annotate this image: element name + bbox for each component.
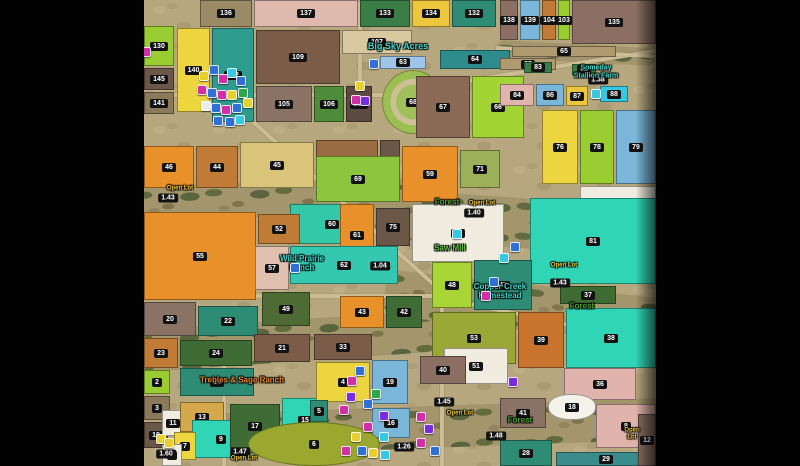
field-number-badge: 42 — [397, 308, 411, 317]
field-number-badge: 18 — [565, 403, 579, 412]
map-marker-icon[interactable] — [380, 450, 390, 460]
field-number-badge: 6 — [309, 440, 319, 449]
place-label: Wild Prairie Ranch — [280, 255, 324, 273]
map-marker-icon[interactable] — [424, 424, 434, 434]
field-number-badge: 3 — [152, 404, 162, 413]
map-marker-icon[interactable] — [369, 59, 379, 69]
field-number-badge: 69 — [351, 175, 365, 184]
field-number-badge: 28 — [519, 449, 533, 458]
field-number-badge: 145 — [150, 75, 168, 84]
map-marker-icon[interactable] — [379, 411, 389, 421]
place-label: Forest — [508, 417, 532, 426]
map-marker-icon[interactable] — [591, 89, 601, 99]
field-number-badge: 21 — [275, 344, 289, 353]
field-number-badge: 87 — [570, 92, 584, 101]
field-parcel[interactable]: 28 — [500, 440, 552, 466]
field-parcel[interactable]: 16 — [372, 408, 410, 438]
map-marker-icon[interactable] — [221, 105, 231, 115]
place-label: Saw Mill — [434, 245, 466, 254]
field-parcel[interactable]: 105 — [256, 86, 312, 122]
map-marker-icon[interactable] — [360, 96, 370, 106]
map-marker-icon[interactable] — [430, 446, 440, 456]
field-number-badge: 130 — [150, 42, 168, 51]
field-number-badge: 132 — [465, 9, 483, 18]
open-lot-label: Open Lot — [551, 263, 577, 270]
field-number-badge: 17 — [248, 422, 262, 431]
field-number-badge: 5 — [314, 407, 324, 416]
open-lot-label: Open Lot — [620, 427, 644, 440]
field-number-badge: 49 — [279, 305, 293, 314]
field-number-badge: 71 — [473, 165, 487, 174]
field-parcel[interactable]: 38 — [566, 308, 656, 368]
field-number-badge: 64 — [468, 55, 482, 64]
map-marker-icon[interactable] — [213, 116, 223, 126]
field-number-badge: 134 — [422, 9, 440, 18]
field-number-badge: 33 — [336, 343, 350, 352]
field-number-badge: 29 — [599, 455, 613, 464]
field-parcel[interactable]: 135 — [572, 0, 656, 44]
field-parcel[interactable]: 49 — [262, 292, 310, 326]
field-number-badge: 136 — [217, 9, 235, 18]
open-lot-label: Open Lot — [167, 186, 193, 193]
field-parcel[interactable]: 39 — [518, 312, 564, 368]
field-number-badge: 139 — [521, 16, 539, 25]
field-number-badge: 23 — [154, 349, 168, 358]
field-parcel[interactable]: 2 — [144, 370, 170, 394]
map-marker-icon[interactable] — [489, 277, 499, 287]
map-marker-icon[interactable] — [197, 85, 207, 95]
map-marker-icon[interactable] — [217, 90, 227, 100]
map-marker-icon[interactable] — [211, 103, 221, 113]
field-number-badge: 138 — [500, 16, 518, 25]
open-lot-label: Open Lot — [469, 201, 495, 208]
map-marker-icon[interactable] — [452, 229, 462, 239]
field-parcel[interactable]: 42 — [386, 296, 422, 328]
field-number-badge: 43 — [355, 308, 369, 317]
field-parcel[interactable]: 33 — [314, 334, 372, 360]
field-parcel[interactable]: 87 — [566, 86, 588, 106]
field-parcel[interactable]: 71 — [460, 150, 500, 188]
map-marker-icon[interactable] — [499, 253, 509, 263]
map-marker-icon[interactable] — [207, 88, 217, 98]
lot-size-badge: 1.04 — [370, 262, 390, 271]
field-number-badge: 88 — [607, 90, 621, 99]
field-parcel[interactable]: 75 — [376, 208, 410, 246]
field-number-badge: 133 — [376, 9, 394, 18]
field-number-badge: 20 — [163, 315, 177, 324]
field-parcel[interactable]: 6 — [248, 422, 380, 466]
field-parcel[interactable]: 22 — [198, 306, 258, 336]
map-marker-icon[interactable] — [363, 399, 373, 409]
map-marker-icon[interactable] — [508, 377, 518, 387]
letterbox-right — [656, 0, 800, 466]
field-number-badge: 59 — [423, 170, 437, 179]
field-parcel[interactable]: 138 — [500, 0, 518, 40]
field-parcel[interactable]: 141 — [144, 92, 174, 114]
lot-size-badge: 1.43 — [550, 279, 570, 288]
field-parcel[interactable]: 84 — [500, 84, 534, 106]
field-number-badge: 62 — [337, 261, 351, 270]
field-number-badge: 103 — [555, 16, 573, 25]
place-label: Trebles & Sage Ranch — [200, 377, 284, 386]
field-parcel[interactable]: 136 — [200, 0, 252, 27]
field-parcel[interactable]: 23 — [144, 338, 178, 368]
field-number-badge: 84 — [510, 91, 524, 100]
field-parcel[interactable]: 44 — [196, 146, 238, 188]
field-parcel[interactable]: 21 — [254, 334, 310, 362]
map-marker-icon[interactable] — [339, 405, 349, 415]
field-number-badge: 67 — [436, 103, 450, 112]
field-number-badge: 61 — [350, 231, 364, 240]
field-parcel[interactable]: 130 — [144, 26, 174, 66]
map-marker-icon[interactable] — [379, 432, 389, 442]
field-parcel[interactable]: 78 — [580, 110, 614, 184]
map-marker-icon[interactable] — [243, 98, 253, 108]
field-number-badge: 9 — [216, 435, 226, 444]
field-number-badge: 51 — [469, 362, 483, 371]
field-number-badge: 60 — [325, 220, 339, 229]
field-parcel[interactable]: 140 — [177, 28, 210, 112]
field-parcel[interactable]: 65 — [512, 46, 616, 57]
field-number-badge: 86 — [543, 91, 557, 100]
field-parcel[interactable]: 103 — [558, 0, 570, 40]
field-number-badge: 39 — [534, 336, 548, 345]
field-parcel[interactable]: 40 — [420, 356, 466, 384]
game-window: 1361371331341321381391041031351301401021… — [0, 0, 800, 466]
field-parcel[interactable]: 133 — [360, 0, 410, 27]
open-lot-label: Open Lot — [447, 411, 473, 418]
field-parcel[interactable]: 134 — [412, 0, 450, 27]
map-marker-icon[interactable] — [236, 76, 246, 86]
field-number-badge: 109 — [289, 53, 307, 62]
map-marker-icon[interactable] — [201, 101, 211, 111]
field-number-badge: 53 — [467, 334, 481, 343]
field-number-badge: 79 — [629, 143, 643, 152]
map-marker-icon[interactable] — [416, 438, 426, 448]
field-parcel[interactable]: 132 — [452, 0, 496, 27]
field-parcel[interactable]: 48 — [432, 262, 472, 308]
map-marker-icon[interactable] — [363, 422, 373, 432]
field-number-badge: 19 — [383, 378, 397, 387]
field-parcel[interactable]: 104 — [542, 0, 556, 40]
field-parcel[interactable]: 45 — [240, 142, 314, 188]
map-marker-icon[interactable] — [238, 88, 248, 98]
map-marker-icon[interactable] — [209, 65, 219, 75]
field-number-badge: 57 — [265, 264, 279, 273]
map-marker-icon[interactable] — [144, 47, 151, 57]
field-parcel[interactable]: 145 — [144, 68, 174, 90]
map-marker-icon[interactable] — [225, 117, 235, 127]
field-parcel[interactable]: 69 — [316, 156, 400, 202]
field-parcel[interactable]: 67 — [416, 76, 470, 138]
field-number-badge: 48 — [445, 281, 459, 290]
field-parcel[interactable]: 86 — [536, 84, 564, 106]
map-marker-icon[interactable] — [371, 389, 381, 399]
field-number-badge: 137 — [297, 9, 315, 18]
field-number-badge: 11 — [166, 419, 179, 428]
map-marker-icon[interactable] — [351, 432, 361, 442]
lot-size-badge: 1.45 — [434, 398, 454, 407]
field-parcel[interactable]: 139 — [520, 0, 540, 40]
open-lot-label: Open Lot — [231, 456, 257, 463]
field-parcel[interactable]: 5 — [310, 400, 328, 422]
map-marker-icon[interactable] — [347, 376, 357, 386]
field-parcel[interactable]: 46 — [144, 146, 194, 188]
map-marker-icon[interactable] — [290, 263, 300, 273]
field-number-badge: 63 — [396, 58, 410, 67]
map-marker-icon[interactable] — [368, 448, 378, 458]
field-parcel[interactable]: 24 — [180, 340, 252, 366]
place-label: Big Sky Acres — [368, 42, 428, 52]
field-parcel[interactable]: 43 — [340, 296, 384, 328]
field-number-badge: 76 — [553, 143, 567, 152]
field-number-badge: 55 — [193, 252, 207, 261]
field-parcel[interactable]: 81 — [530, 198, 656, 284]
field-number-badge: 65 — [557, 47, 571, 56]
field-number-badge: 135 — [605, 18, 623, 27]
field-number-badge: 37 — [581, 291, 595, 300]
map-marker-icon[interactable] — [341, 446, 351, 456]
field-number-badge: 44 — [210, 163, 224, 172]
lot-size-badge: 1.40 — [464, 209, 484, 218]
field-number-badge: 75 — [386, 223, 400, 232]
map-marker-icon[interactable] — [355, 81, 365, 91]
field-number-badge: 52 — [272, 225, 286, 234]
field-number-badge: 45 — [270, 161, 284, 170]
field-number-badge: 24 — [209, 349, 223, 358]
field-number-badge: 106 — [320, 100, 338, 109]
map-marker-icon[interactable] — [227, 90, 237, 100]
lot-size-badge: 1.48 — [486, 432, 506, 441]
map-marker-icon[interactable] — [481, 291, 491, 301]
field-number-badge: 141 — [150, 99, 168, 108]
place-label: Forest — [570, 303, 594, 312]
field-number-badge: 105 — [275, 100, 293, 109]
field-parcel[interactable]: 83 — [524, 62, 552, 73]
field-number-badge: 78 — [590, 143, 604, 152]
field-parcel[interactable]: 109 — [256, 30, 340, 84]
map-marker-icon[interactable] — [346, 392, 356, 402]
map-marker-icon[interactable] — [510, 242, 520, 252]
field-number-badge: 22 — [221, 317, 235, 326]
field-parcel[interactable]: 88 — [600, 86, 628, 102]
field-parcel[interactable]: 76 — [542, 110, 578, 184]
field-number-badge: 2 — [152, 378, 162, 387]
place-label: Forest — [435, 199, 459, 208]
map-marker-icon[interactable] — [355, 366, 365, 376]
letterbox-left — [0, 0, 144, 466]
field-parcel[interactable]: 137 — [254, 0, 358, 27]
map-marker-icon[interactable] — [357, 446, 367, 456]
field-number-badge: 83 — [531, 63, 545, 72]
lot-size-badge: 1.43 — [158, 194, 178, 203]
map-marker-icon[interactable] — [199, 71, 209, 81]
lot-size-badge: 1.60 — [156, 450, 176, 459]
field-parcel[interactable]: 18 — [548, 394, 596, 420]
map-marker-icon[interactable] — [235, 115, 245, 125]
map-marker-icon[interactable] — [164, 438, 174, 448]
lot-size-badge: 1.26 — [394, 443, 414, 452]
field-parcel[interactable]: 52 — [258, 214, 300, 244]
field-number-badge: 40 — [436, 366, 450, 375]
game-map[interactable]: 1361371331341321381391041031351301401021… — [144, 0, 656, 466]
field-parcel[interactable]: 55 — [144, 212, 256, 300]
field-number-badge: 46 — [162, 163, 176, 172]
field-number-badge: 81 — [586, 237, 600, 246]
place-label: Someday Stallion Farm — [574, 64, 618, 79]
field-number-badge: 38 — [604, 334, 618, 343]
field-parcel[interactable]: 63 — [380, 56, 426, 69]
map-marker-icon[interactable] — [416, 412, 426, 422]
map-marker-icon[interactable] — [232, 103, 242, 113]
field-parcel[interactable]: 20 — [144, 302, 196, 336]
field-parcel[interactable]: 59 — [402, 146, 458, 202]
field-number-badge: 36 — [593, 380, 607, 389]
field-parcel[interactable]: 79 — [616, 110, 656, 184]
field-parcel[interactable]: 106 — [314, 86, 344, 122]
